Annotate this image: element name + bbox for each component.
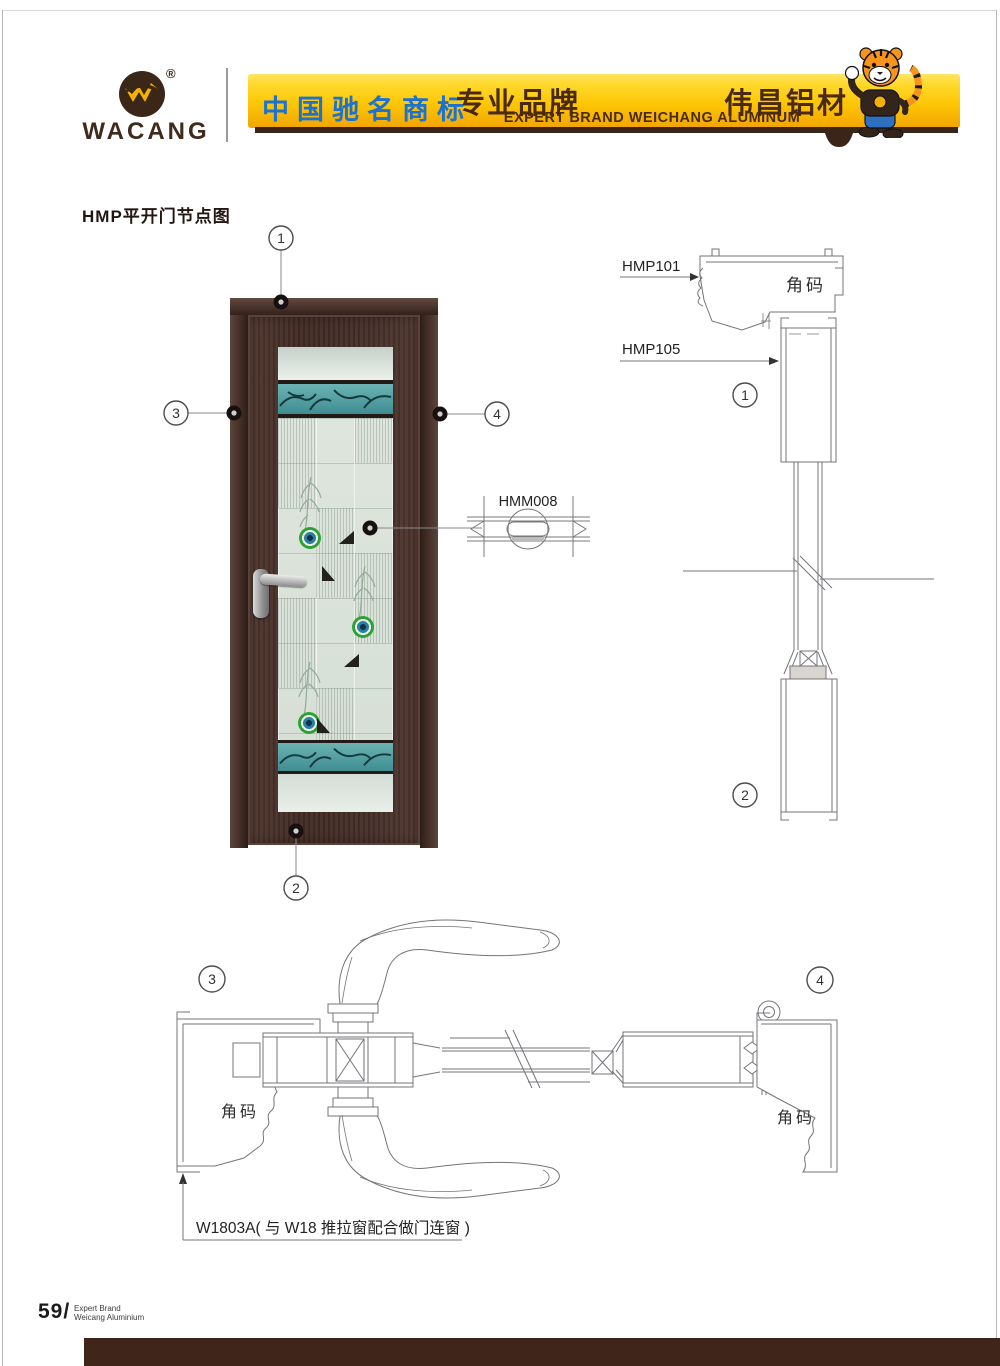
callout-3-section: 3 — [199, 966, 225, 992]
footer-bar — [84, 1338, 1000, 1366]
svg-text:1: 1 — [741, 387, 749, 403]
svg-text:4: 4 — [816, 972, 824, 988]
svg-text:1: 1 — [277, 230, 285, 246]
w1803a-note: W1803A( 与 W18 推拉窗配合做门连窗 ) — [196, 1219, 470, 1237]
svg-text:HMM008: HMM008 — [499, 494, 558, 510]
footer-brand-line2: Weicang Aluminium — [74, 1313, 144, 1322]
svg-text:HMP101: HMP101 — [622, 258, 680, 275]
footer-brand-line1: Expert Brand — [74, 1304, 144, 1313]
svg-text:4: 4 — [493, 406, 501, 422]
callout-1-photo: 1 — [269, 226, 293, 250]
technical-drawings: 1 2 3 4 HMM008 HMP101 — [0, 0, 1000, 1366]
section-horizontal: 角码 — [177, 920, 837, 1240]
svg-text:角码: 角码 — [786, 276, 826, 295]
page-number: 59/ — [38, 1300, 70, 1324]
callout-2-photo: 2 — [284, 876, 308, 900]
svg-text:角码: 角码 — [777, 1109, 815, 1127]
callout-dots — [227, 295, 448, 839]
catalog-page: ® WACANG 中国驰名商标 专业品牌 伟昌铝材 EXPERT BRAND W… — [0, 0, 1000, 1366]
section-vertical: HMP101 角码 HMP105 — [620, 249, 934, 820]
footer-brand: Expert Brand Weicang Aluminium — [74, 1304, 144, 1322]
callout-1-section: 1 — [733, 383, 757, 407]
svg-text:HMP105: HMP105 — [622, 341, 680, 358]
callout-3-photo: 3 — [164, 401, 188, 425]
svg-text:3: 3 — [172, 405, 180, 421]
callout-2-section: 2 — [733, 783, 757, 807]
svg-text:2: 2 — [741, 787, 749, 803]
svg-text:3: 3 — [208, 971, 216, 987]
svg-text:2: 2 — [292, 880, 300, 896]
callout-4-section: 4 — [807, 967, 833, 993]
callout-4-photo: 4 — [485, 402, 509, 426]
hmm008-detail: HMM008 — [467, 494, 590, 557]
svg-text:角码: 角码 — [221, 1103, 259, 1121]
